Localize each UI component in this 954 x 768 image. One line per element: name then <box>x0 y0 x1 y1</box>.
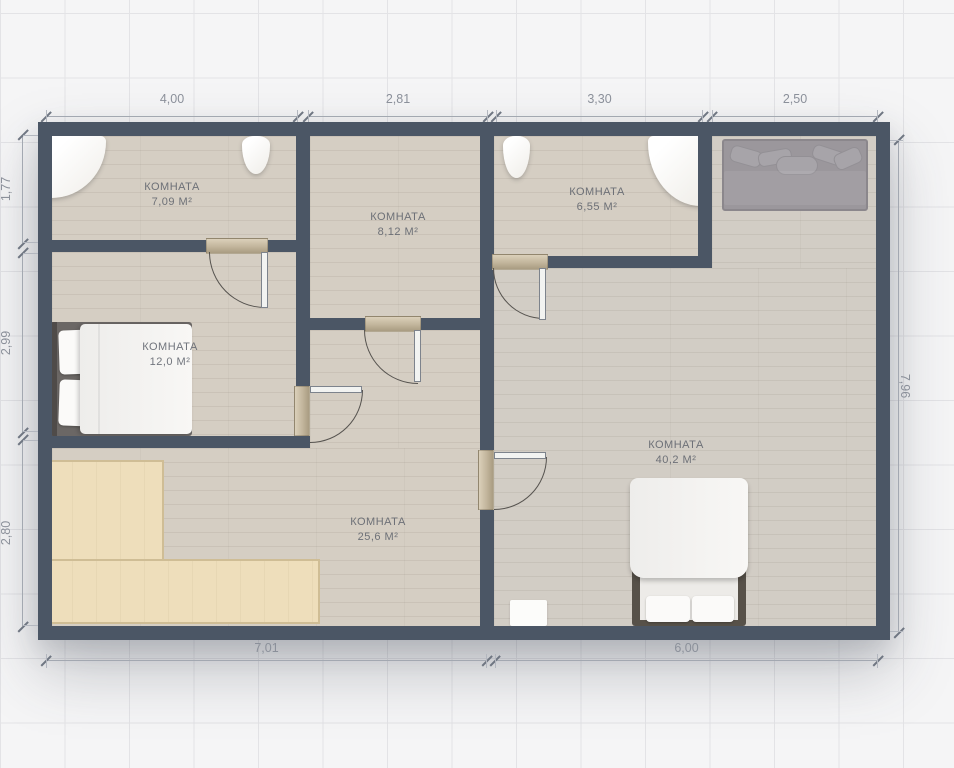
floor-plan[interactable]: КОМНАТА 7,09 м² КОМНАТА 8,12 м² КОМНАТА … <box>38 122 890 640</box>
dimension-top-4: 2,50 <box>712 92 878 118</box>
dimension-tick <box>18 621 29 632</box>
dimension-value: 7,01 <box>46 641 487 655</box>
bed-duvet <box>630 478 748 578</box>
dimension-right-1: 7,96 <box>892 140 918 632</box>
dimension-bottom-2: 6,00 <box>495 638 878 662</box>
extension-line <box>46 654 47 668</box>
wall[interactable] <box>876 122 890 640</box>
extension-line <box>495 654 496 668</box>
dimension-tick <box>894 627 905 638</box>
corner-sofa[interactable] <box>46 559 320 624</box>
bed-pillow <box>646 596 690 622</box>
dimension-line <box>46 660 487 661</box>
dimension-top-2: 2,81 <box>308 92 488 118</box>
dimension-value: 4,00 <box>46 92 298 106</box>
dimension-value: 2,81 <box>308 92 488 106</box>
dimension-line <box>22 253 23 432</box>
duvet-fold <box>98 324 100 434</box>
wall[interactable] <box>52 436 310 448</box>
dimension-value: 2,99 <box>0 303 13 383</box>
double-bed[interactable] <box>50 322 192 436</box>
bed-pillow <box>692 596 734 622</box>
door-leaf[interactable] <box>261 252 268 308</box>
wall[interactable] <box>480 510 494 626</box>
dimension-value: 6,00 <box>495 641 878 655</box>
dimension-value: 1,77 <box>0 149 13 229</box>
dimension-top-3: 3,30 <box>496 92 703 118</box>
wall[interactable] <box>38 122 890 136</box>
dimension-tick <box>873 111 884 122</box>
dimension-left-3: 2,80 <box>10 440 36 626</box>
extension-line <box>23 431 39 432</box>
wall[interactable] <box>547 256 712 268</box>
door-opening <box>294 386 310 436</box>
dimension-value: 2,80 <box>0 493 13 573</box>
wall[interactable] <box>480 122 494 450</box>
dimension-line <box>22 135 23 243</box>
wall[interactable] <box>296 318 365 330</box>
wall[interactable] <box>698 122 712 268</box>
dimension-value: 7,96 <box>898 346 912 426</box>
door-leaf[interactable] <box>310 386 362 393</box>
sofa[interactable] <box>722 139 868 211</box>
grid-background: 4,00 2,81 3,30 2,50 <box>0 0 954 768</box>
sofa-seat <box>724 171 866 205</box>
wall[interactable] <box>52 240 206 252</box>
extension-line <box>23 253 39 254</box>
dimension-left-1: 1,77 <box>10 135 36 243</box>
extension-line <box>23 242 39 243</box>
wall[interactable] <box>38 626 890 640</box>
wall[interactable] <box>268 240 310 252</box>
dimension-line <box>22 440 23 626</box>
dimension-value: 2,50 <box>712 92 878 106</box>
dimension-left-2: 2,99 <box>10 253 36 432</box>
door-leaf[interactable] <box>494 452 546 459</box>
extension-line <box>23 135 39 136</box>
dimension-top-1: 4,00 <box>46 92 298 118</box>
dimension-line <box>496 116 703 117</box>
extension-line <box>877 654 878 668</box>
dimension-line <box>495 660 878 661</box>
extension-line <box>23 440 39 441</box>
bath-mat[interactable] <box>510 600 547 626</box>
room-floor-hall[interactable] <box>310 136 480 318</box>
dimension-bottom-1: 7,01 <box>46 638 487 662</box>
extension-line <box>23 625 39 626</box>
extension-line <box>486 654 487 668</box>
wall[interactable] <box>38 122 52 640</box>
sofa-cushion <box>832 145 864 172</box>
double-bed[interactable] <box>630 478 748 626</box>
dimension-tick <box>873 655 884 666</box>
dimension-line <box>46 116 298 117</box>
door-leaf[interactable] <box>414 330 421 382</box>
dimension-line <box>308 116 488 117</box>
door-opening <box>478 450 494 510</box>
door-leaf[interactable] <box>539 268 546 320</box>
bed-duvet <box>80 324 192 434</box>
wall[interactable] <box>296 122 310 386</box>
dimension-value: 3,30 <box>496 92 703 106</box>
dimension-line <box>712 116 878 117</box>
